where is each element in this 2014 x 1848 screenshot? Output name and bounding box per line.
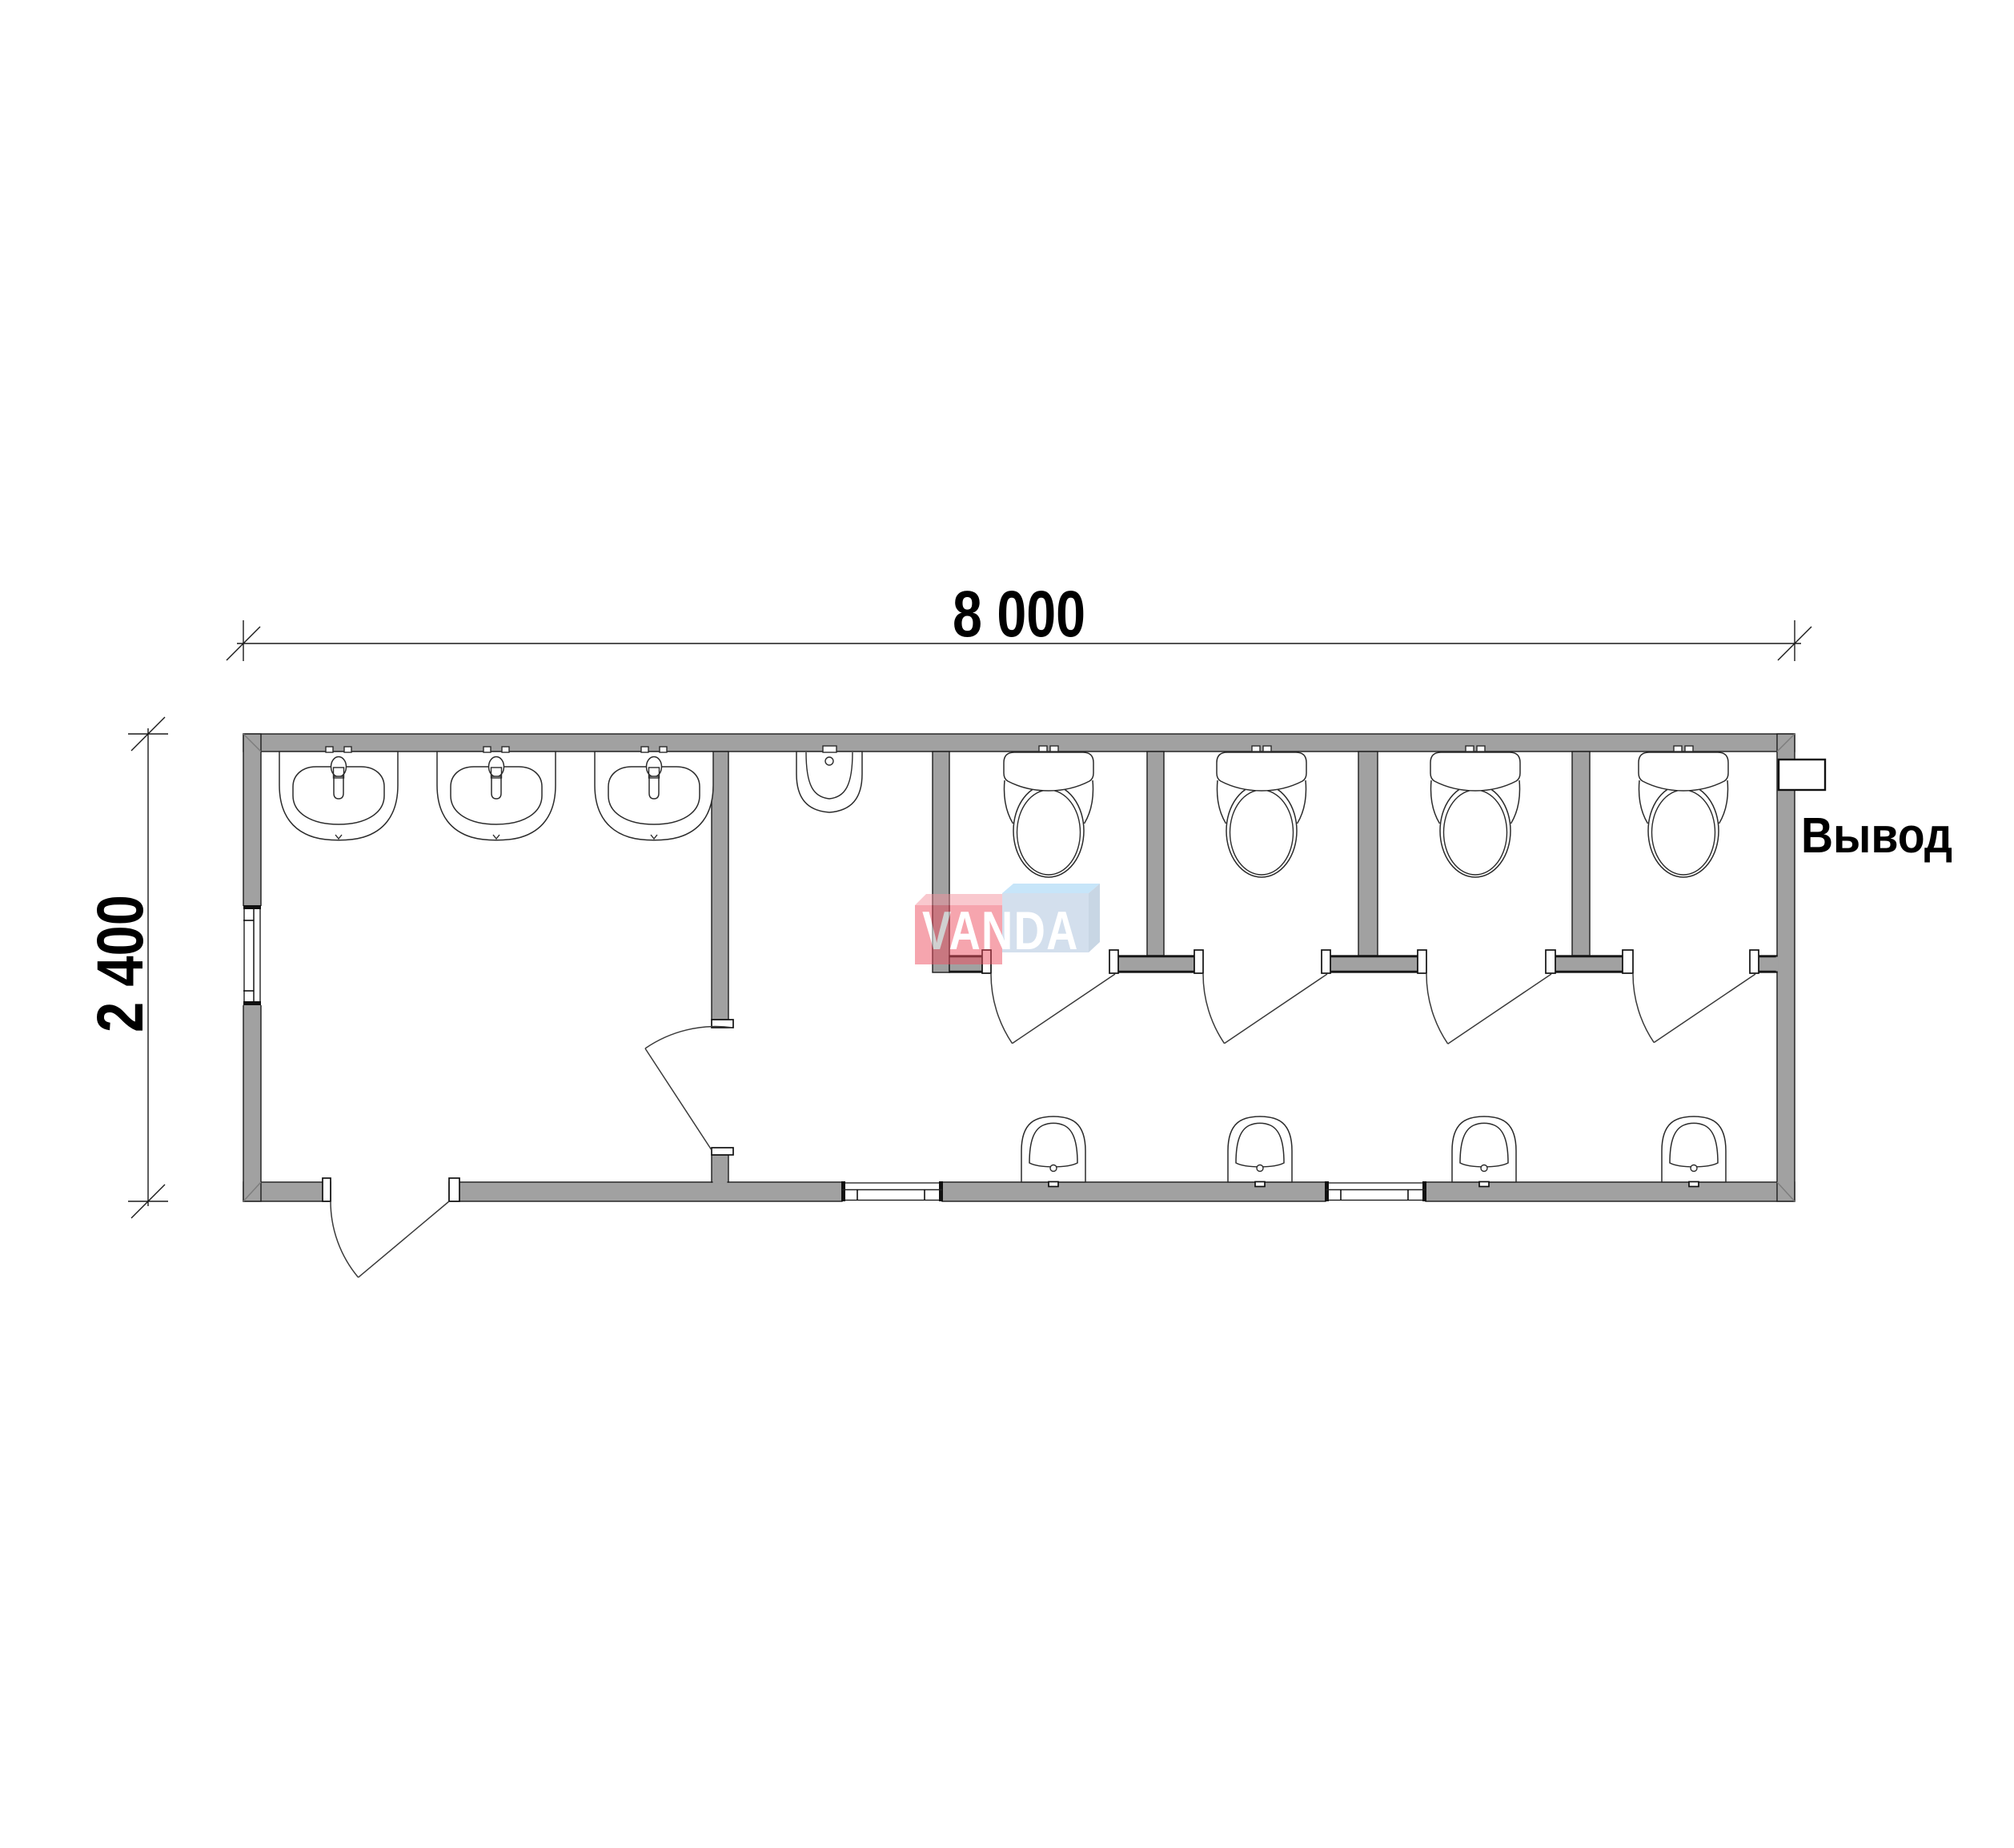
svg-text:8 000: 8 000 bbox=[953, 578, 1085, 651]
svg-text:VANDA: VANDA bbox=[922, 900, 1077, 961]
svg-text:Вывод: Вывод bbox=[1801, 808, 1952, 864]
svg-text:2 400: 2 400 bbox=[84, 895, 157, 1032]
